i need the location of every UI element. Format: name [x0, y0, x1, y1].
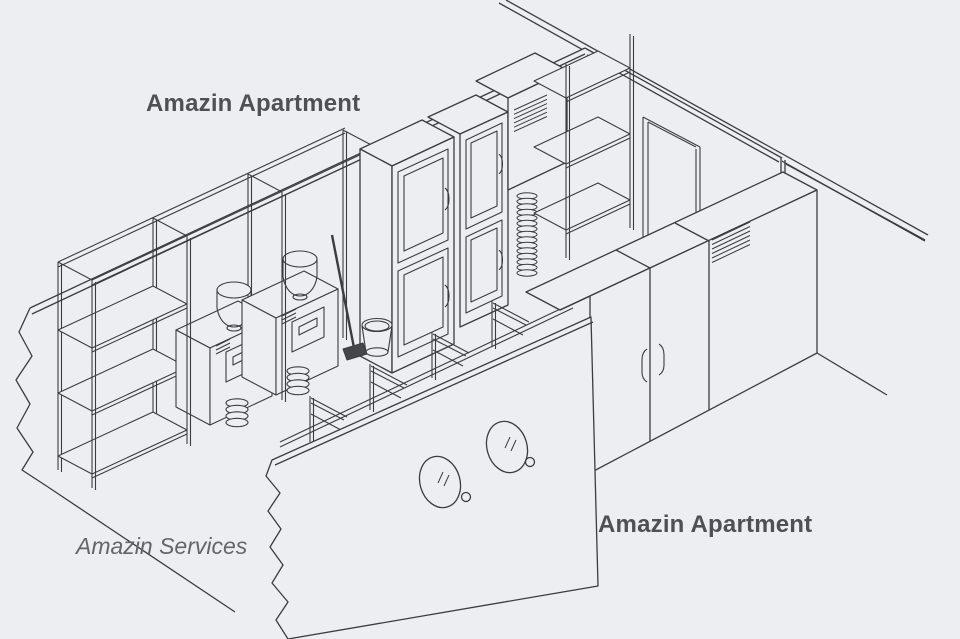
- floor-edge: [817, 353, 887, 395]
- drain-hose-2: [287, 367, 309, 395]
- drain-hose-1: [226, 399, 248, 427]
- label-services: Amazin Services: [76, 533, 247, 560]
- apartment-isometric-illustration: Amazin Apartment Amazin Services Amazin …: [0, 0, 960, 639]
- corrugated-duct: [517, 193, 537, 276]
- tall-cabinet-1: [360, 120, 454, 373]
- label-apartment-top: Amazin Apartment: [146, 90, 360, 118]
- label-apartment-bottom: Amazin Apartment: [598, 511, 812, 539]
